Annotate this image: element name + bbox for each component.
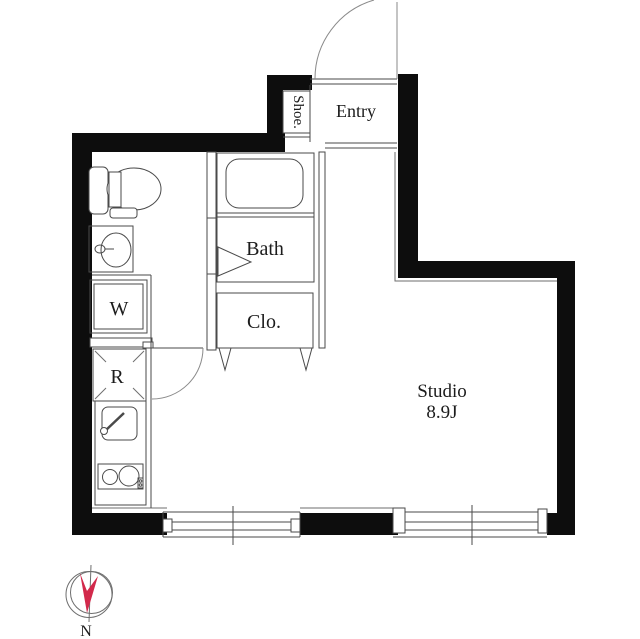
wall-studio-top [398,261,575,278]
bath-label: Bath [246,238,284,260]
shoe-label: Shoe. [290,95,306,129]
window-1-cap-left [163,519,172,532]
wall-entry-right [398,74,418,278]
compass-north-label: N [80,623,92,639]
window-1-cap-right [291,519,300,532]
wall-entry-notch-top [267,75,312,90]
wall-bottom-a [72,513,167,535]
wall-top-left-block [72,133,285,152]
window-2-cap-left [393,508,405,533]
refrigerator-label: R [110,366,124,388]
floor-plan-page: Entry Shoe. Bath Clo. [0,0,640,639]
studio-size-label: 8.9J [426,402,457,423]
entry-label: Entry [336,101,376,121]
wall-bottom-b [300,513,398,535]
wall-bath-zone-right [319,152,325,348]
shoe-cabinet: Shoe. [283,91,310,137]
wall-bottom-c [547,513,575,535]
wall-hall-bath [207,152,216,350]
toilet-tank [89,167,108,214]
closet-label: Clo. [247,311,281,333]
studio-label: Studio [417,381,467,402]
toilet-seat-hinge [109,172,121,207]
window-2-cap-right [538,509,547,533]
toilet-control-panel [110,208,137,218]
wall-studio-right [557,261,575,535]
washer-label: W [110,298,129,320]
floor-plan: Entry Shoe. Bath Clo. [0,0,640,639]
